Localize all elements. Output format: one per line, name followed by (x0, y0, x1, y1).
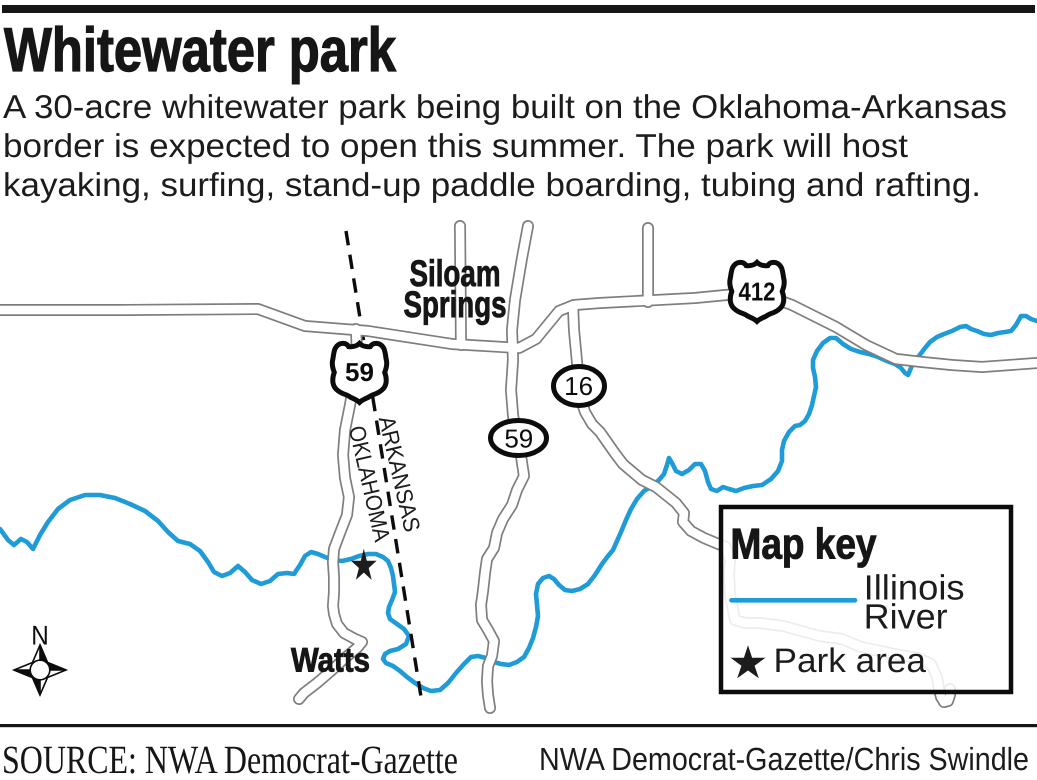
svg-text:border is expected to open thi: border is expected to open this summer. … (3, 127, 908, 164)
svg-text:59: 59 (504, 424, 533, 454)
svg-text:412: 412 (739, 277, 776, 307)
svg-text:16: 16 (564, 371, 593, 401)
svg-text:kayaking, surfing, stand-up pa: kayaking, surfing, stand-up paddle board… (3, 166, 981, 203)
svg-text:NWA Democrat-Gazette/Chris Swi: NWA Democrat-Gazette/Chris Swindle (539, 741, 1029, 777)
svg-text:59: 59 (345, 357, 374, 387)
svg-text:Park area: Park area (774, 642, 927, 680)
svg-text:Whitewater park: Whitewater park (4, 16, 396, 85)
svg-text:Springs: Springs (404, 284, 507, 325)
svg-text:River: River (864, 598, 948, 637)
svg-text:N: N (31, 620, 49, 650)
svg-text:A 30-acre whitewater park bein: A 30-acre whitewater park being built on… (3, 88, 1007, 125)
svg-text:Map key: Map key (731, 520, 877, 568)
svg-text:SOURCE: NWA Democrat-Gazette: SOURCE: NWA Democrat-Gazette (2, 737, 458, 780)
svg-text:Watts: Watts (291, 642, 370, 680)
